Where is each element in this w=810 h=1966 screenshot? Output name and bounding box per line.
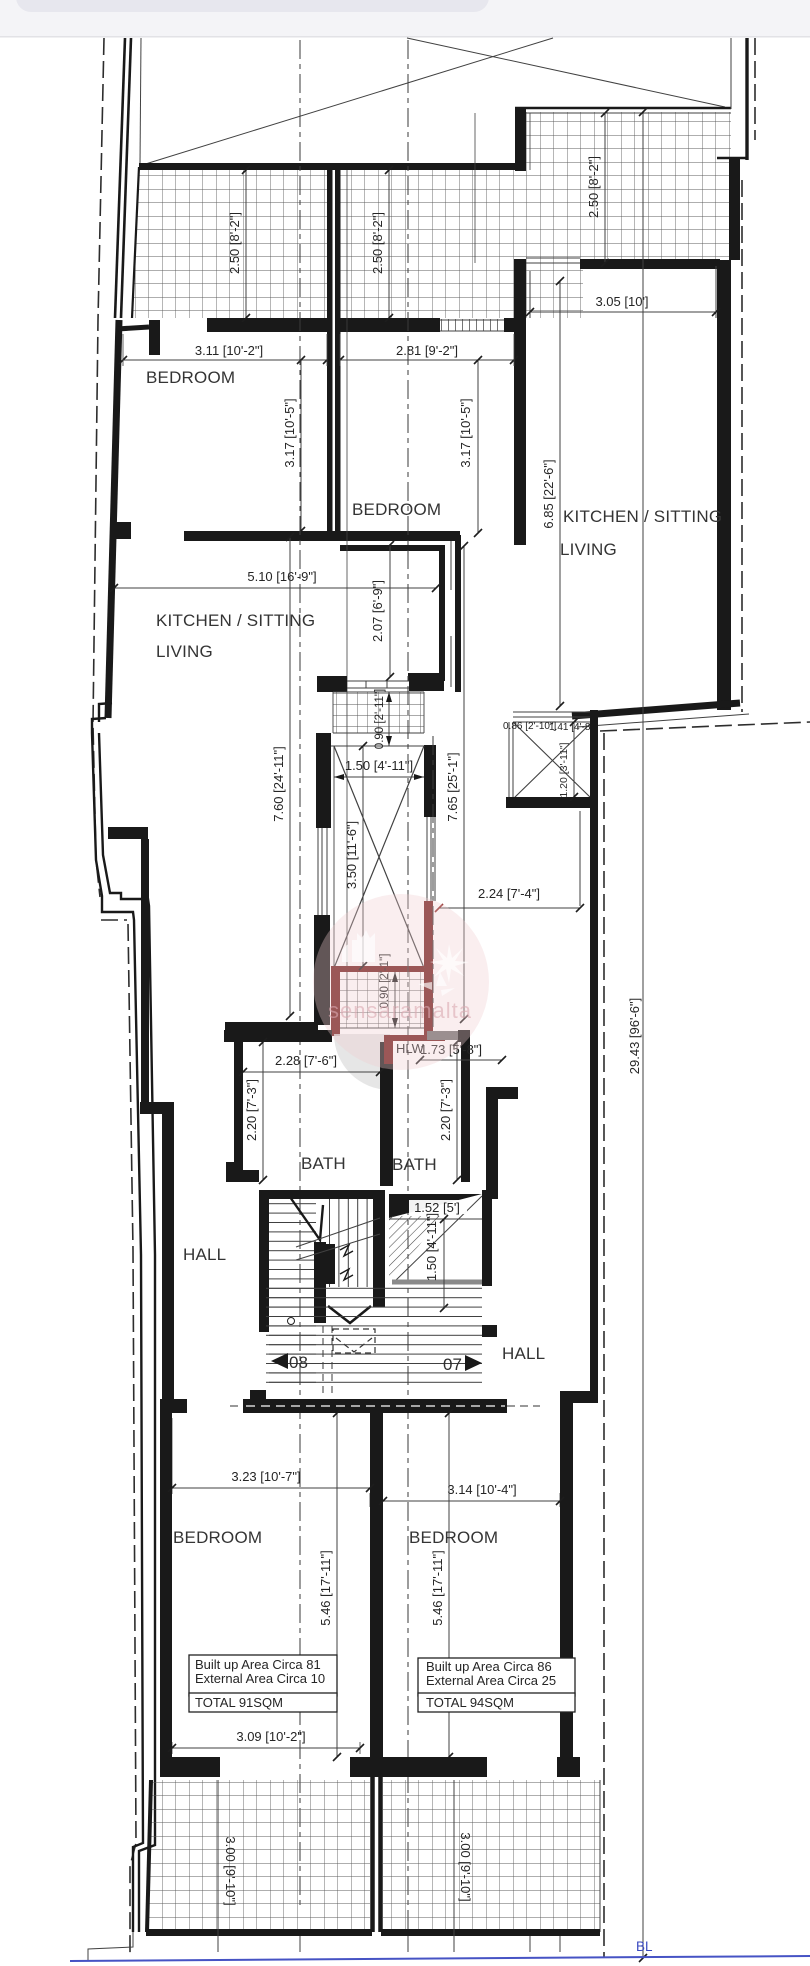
svg-text:1.52 [5']: 1.52 [5'] <box>414 1200 460 1215</box>
svg-text:1.20 [3'-11"]: 1.20 [3'-11"] <box>558 742 570 797</box>
svg-text:5.46 [17'-11"]: 5.46 [17'-11"] <box>430 1550 445 1626</box>
svg-text:BL: BL <box>636 1939 653 1954</box>
svg-text:3.05 [10']: 3.05 [10'] <box>595 294 648 309</box>
svg-text:3.23 [10'-7"]: 3.23 [10'-7"] <box>231 1469 300 1484</box>
svg-text:2.24 [7'-4"]: 2.24 [7'-4"] <box>478 886 540 901</box>
svg-text:29.43 [96'-6"]: 29.43 [96'-6"] <box>627 998 642 1074</box>
svg-text:sensaramalta: sensaramalta <box>328 998 472 1023</box>
svg-text:7.60 [24'-11"]: 7.60 [24'-11"] <box>271 746 286 822</box>
svg-text:2.20 [7'-3"]: 2.20 [7'-3"] <box>244 1079 259 1141</box>
svg-text:BEDROOM: BEDROOM <box>352 500 441 519</box>
svg-text:HALL: HALL <box>183 1245 226 1264</box>
svg-text:BEDROOM: BEDROOM <box>146 368 235 387</box>
svg-text:07: 07 <box>443 1355 462 1374</box>
svg-text:7.65 [25'-1"]: 7.65 [25'-1"] <box>445 752 460 821</box>
svg-text:3.00 [9'-10"]: 3.00 [9'-10"] <box>458 1832 473 1901</box>
svg-text:LIVING: LIVING <box>560 540 617 559</box>
svg-text:2.50 [8'-2"]: 2.50 [8'-2"] <box>227 212 242 274</box>
svg-text:5.10 [16'-9"]: 5.10 [16'-9"] <box>247 569 316 584</box>
svg-text:TOTAL 94SQM: TOTAL 94SQM <box>426 1695 514 1710</box>
svg-text:BATH: BATH <box>392 1155 437 1174</box>
svg-text:3.17 [10'-5"]: 3.17 [10'-5"] <box>458 398 473 467</box>
svg-text:6.85 [22'-6"]: 6.85 [22'-6"] <box>541 459 556 528</box>
svg-text:HALL: HALL <box>502 1344 545 1363</box>
svg-text:KITCHEN / SITTING: KITCHEN / SITTING <box>156 611 315 630</box>
svg-text:Built up Area Circa 81: Built up Area Circa 81 <box>195 1657 321 1672</box>
svg-text:BEDROOM: BEDROOM <box>409 1528 498 1547</box>
svg-text:3.09 [10'-2"]: 3.09 [10'-2"] <box>236 1729 305 1744</box>
svg-text:3.14 [10'-4"]: 3.14 [10'-4"] <box>447 1482 516 1497</box>
svg-text:Built up Area Circa 86: Built up Area Circa 86 <box>426 1659 552 1674</box>
svg-text:3.00 [9'-10"]: 3.00 [9'-10"] <box>223 1836 238 1905</box>
svg-text:08: 08 <box>289 1353 308 1372</box>
svg-text:0.90 [2'-11"]: 0.90 [2'-11"] <box>374 689 386 749</box>
svg-text:External Area Circa 25: External Area Circa 25 <box>426 1673 556 1688</box>
svg-text:TOTAL 91SQM: TOTAL 91SQM <box>195 1695 283 1710</box>
svg-text:BATH: BATH <box>301 1154 346 1173</box>
svg-text:2.81 [9'-2"]: 2.81 [9'-2"] <box>396 343 458 358</box>
svg-text:3.11 [10'-2"]: 3.11 [10'-2"] <box>195 343 263 358</box>
svg-text:1.50 [4'-11"]: 1.50 [4'-11"] <box>345 758 413 773</box>
svg-text:2.07 [6'-9"]: 2.07 [6'-9"] <box>370 580 385 642</box>
svg-text:5.46 [17'-11"]: 5.46 [17'-11"] <box>318 1550 333 1626</box>
svg-text:1.50 [4'-11"]: 1.50 [4'-11"] <box>424 1213 439 1281</box>
svg-text:BEDROOM: BEDROOM <box>173 1528 262 1547</box>
svg-text:LIVING: LIVING <box>156 642 213 661</box>
svg-text:3.50 [11'-6"]: 3.50 [11'-6"] <box>344 821 359 889</box>
svg-text:External Area Circa 10: External Area Circa 10 <box>195 1671 325 1686</box>
svg-text:2.50 [8'-2"]: 2.50 [8'-2"] <box>586 156 601 218</box>
svg-text:2.28 [7'-6"]: 2.28 [7'-6"] <box>275 1053 337 1068</box>
svg-text:2.20 [7'-3"]: 2.20 [7'-3"] <box>438 1079 453 1141</box>
svg-text:3.17 [10'-5"]: 3.17 [10'-5"] <box>282 398 297 467</box>
svg-text:2.50 [8'-2"]: 2.50 [8'-2"] <box>370 212 385 274</box>
